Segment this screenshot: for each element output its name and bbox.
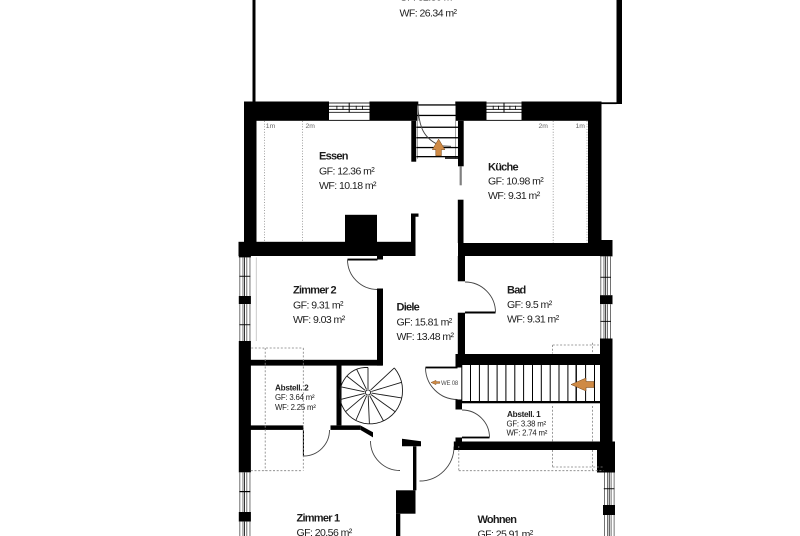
svg-text:GF: 3.38 m²: GF: 3.38 m² (507, 419, 547, 428)
svg-text:WF: 9.31 m²: WF: 9.31 m² (488, 190, 541, 202)
svg-text:Küche: Küche (488, 161, 519, 173)
svg-text:GF: 20.56 m²: GF: 20.56 m² (297, 527, 353, 536)
svg-text:Bad: Bad (507, 284, 526, 296)
svg-text:WF: 9.03 m²: WF: 9.03 m² (293, 314, 346, 326)
svg-text:Diele: Diele (397, 302, 420, 314)
svg-text:Abstell. 1: Abstell. 1 (507, 410, 541, 419)
svg-text:Zimmer 1: Zimmer 1 (297, 513, 341, 525)
svg-text:GF: 10.98 m²: GF: 10.98 m² (488, 176, 544, 188)
svg-text:WF: 10.18 m²: WF: 10.18 m² (319, 180, 377, 192)
svg-text:2m: 2m (539, 123, 549, 130)
svg-text:2m: 2m (306, 123, 316, 130)
svg-text:WF: 9.31 m²: WF: 9.31 m² (507, 314, 560, 326)
svg-text:GF: 12.36 m²: GF: 12.36 m² (319, 166, 375, 178)
svg-text:WF: 26.34 m²: WF: 26.34 m² (400, 7, 458, 19)
svg-text:Abstell. 2: Abstell. 2 (275, 384, 309, 393)
svg-text:Wohnen: Wohnen (478, 514, 518, 526)
svg-text:1m: 1m (576, 123, 586, 130)
svg-text:Zimmer 2: Zimmer 2 (293, 285, 337, 297)
svg-text:WF: 2.74 m²: WF: 2.74 m² (507, 429, 548, 438)
svg-text:GF: 15.81 m²: GF: 15.81 m² (397, 317, 453, 329)
svg-text:1m: 1m (266, 123, 276, 130)
svg-text:WE 08: WE 08 (441, 381, 459, 387)
svg-text:GF: 3.64 m²: GF: 3.64 m² (275, 393, 315, 402)
svg-text:GF: 32.80 m²: GF: 32.80 m² (400, 0, 456, 4)
svg-text:GF: 9.5 m²: GF: 9.5 m² (507, 299, 553, 311)
svg-text:WF: 13.48 m²: WF: 13.48 m² (397, 331, 455, 343)
svg-text:GF: 9.31 m²: GF: 9.31 m² (293, 300, 344, 312)
svg-text:WF: 2.25 m²: WF: 2.25 m² (275, 403, 316, 412)
svg-text:Essen: Essen (319, 150, 349, 162)
svg-text:GF: 25.91 m²: GF: 25.91 m² (478, 529, 534, 536)
